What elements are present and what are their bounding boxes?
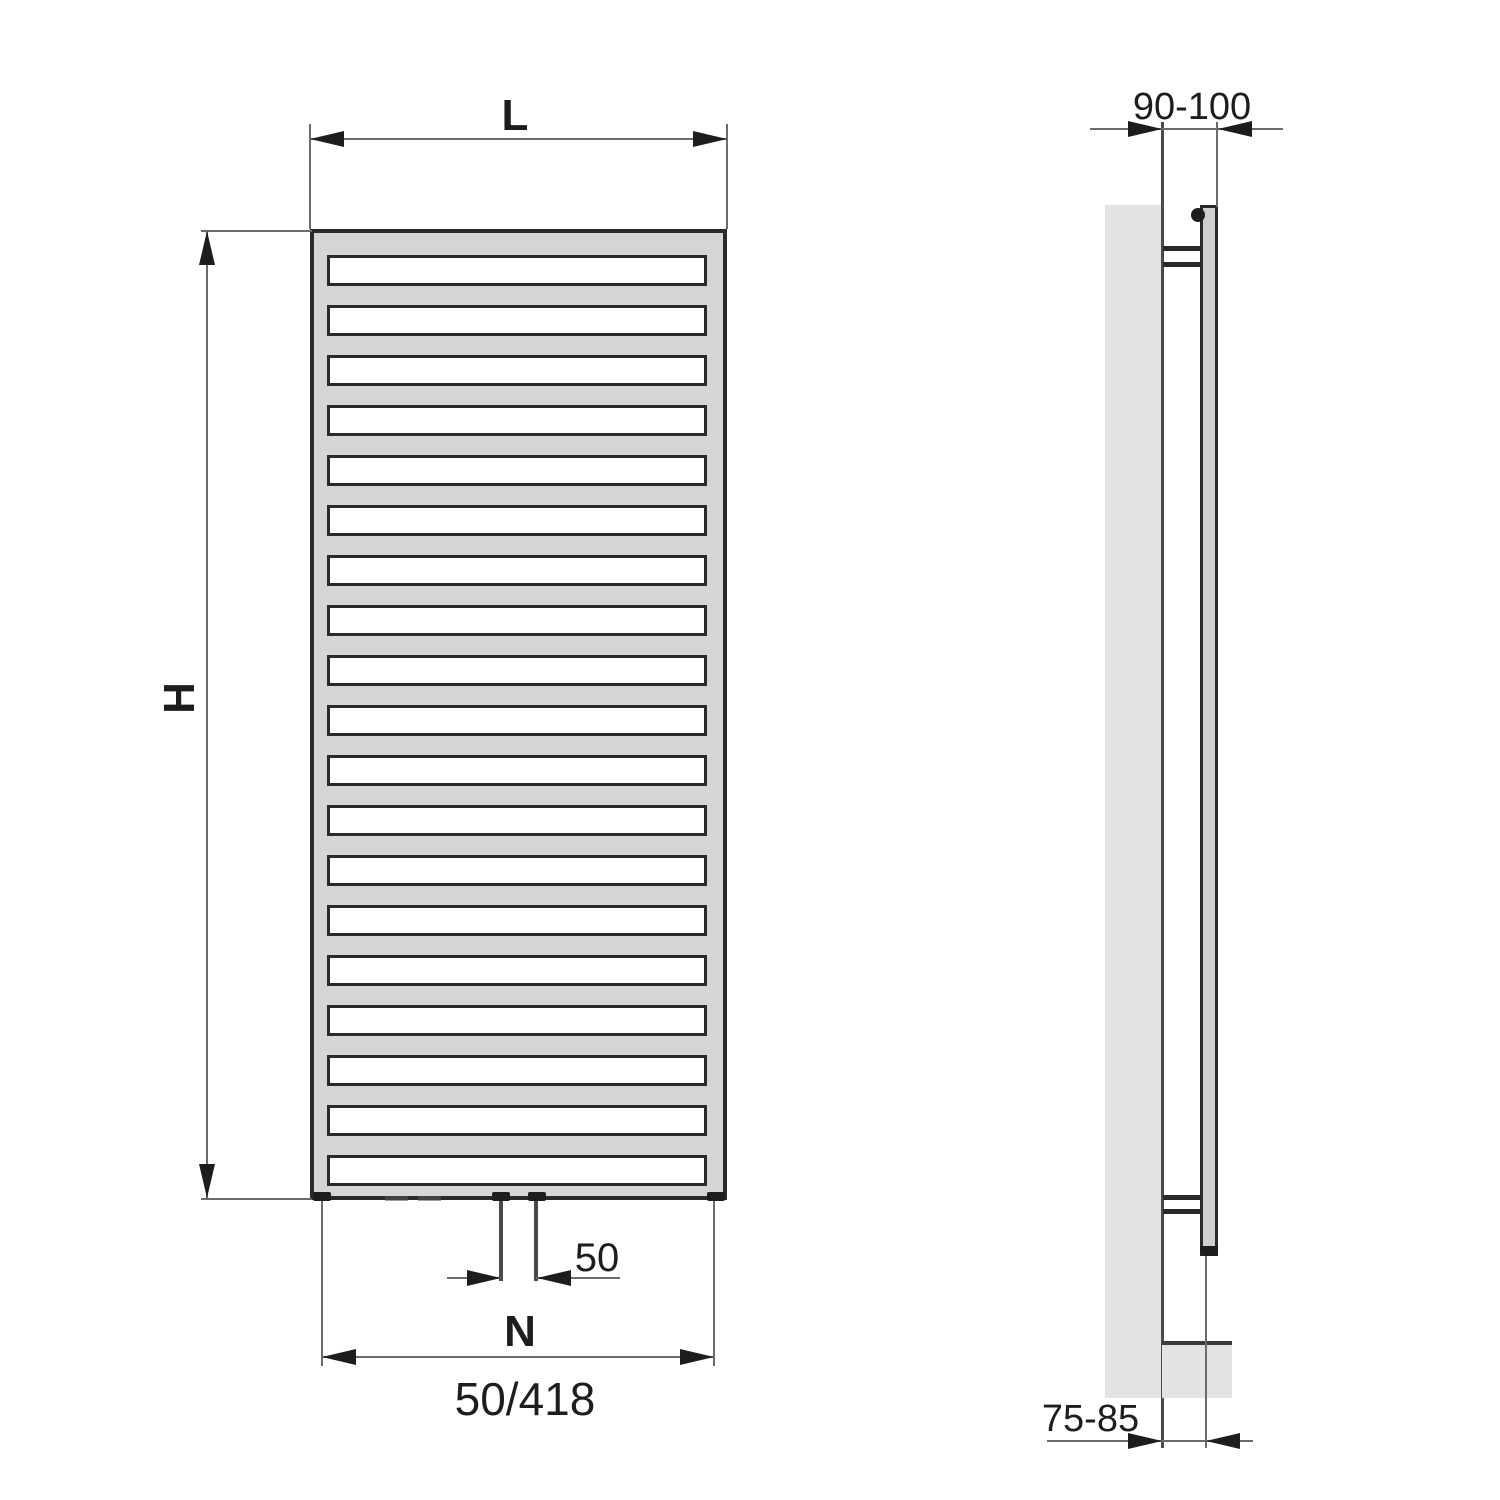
depth-dimension-line xyxy=(1090,128,1283,130)
pipe-extension-line-bottom xyxy=(1205,1256,1207,1448)
vent-plug-dot xyxy=(1191,208,1205,222)
wall-to-pipe-label: 75-85 xyxy=(1028,1400,1153,1438)
wall-bracket-top-lower xyxy=(1163,262,1201,267)
wall-section xyxy=(1105,205,1162,1398)
bottom-depth-arrow-right xyxy=(1206,1433,1240,1449)
wall-bracket-bottom-upper xyxy=(1163,1195,1201,1200)
wall-surface-line xyxy=(1161,122,1164,1448)
tube-bottom-cap xyxy=(1200,1246,1218,1256)
wall-bracket-bottom-lower xyxy=(1163,1209,1201,1214)
wall-bracket-top-upper xyxy=(1163,246,1201,251)
radiator-dimension-drawing: L H 50 N 50/418 xyxy=(0,0,1500,1500)
radiator-side-tube xyxy=(1200,205,1218,1256)
side-view: 90-100 75-85 xyxy=(0,0,1500,1500)
floor-section xyxy=(1162,1345,1232,1398)
wall-to-front-label: 90-100 xyxy=(1117,88,1267,126)
